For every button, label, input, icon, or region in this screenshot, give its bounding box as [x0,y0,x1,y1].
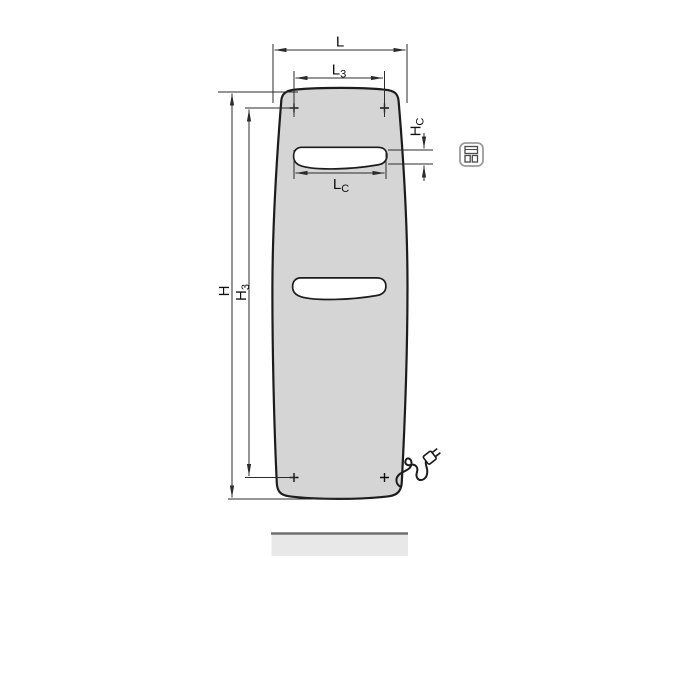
floor-strip [271,534,408,557]
grip-slot-middle [293,278,386,300]
drawing-canvas: L L3 LC H H3 HC [0,0,700,700]
grip-slot-top [294,147,387,169]
radiator-dimension-drawing: L L3 LC H H3 HC [0,0,700,700]
icon-left-box [465,156,470,163]
dimension-label-H3: H3 [233,284,252,301]
plug-prong [435,453,440,457]
floor-fill [272,535,409,557]
plug-prong [432,449,437,453]
dimension-label-L3: L3 [332,62,346,81]
dimension-label-L: L [336,34,344,51]
dimension-label-HC: HC [408,118,427,137]
dimension-label-H: H [216,286,233,297]
electric-connection-icon [460,143,483,166]
icon-right-box [472,156,477,163]
